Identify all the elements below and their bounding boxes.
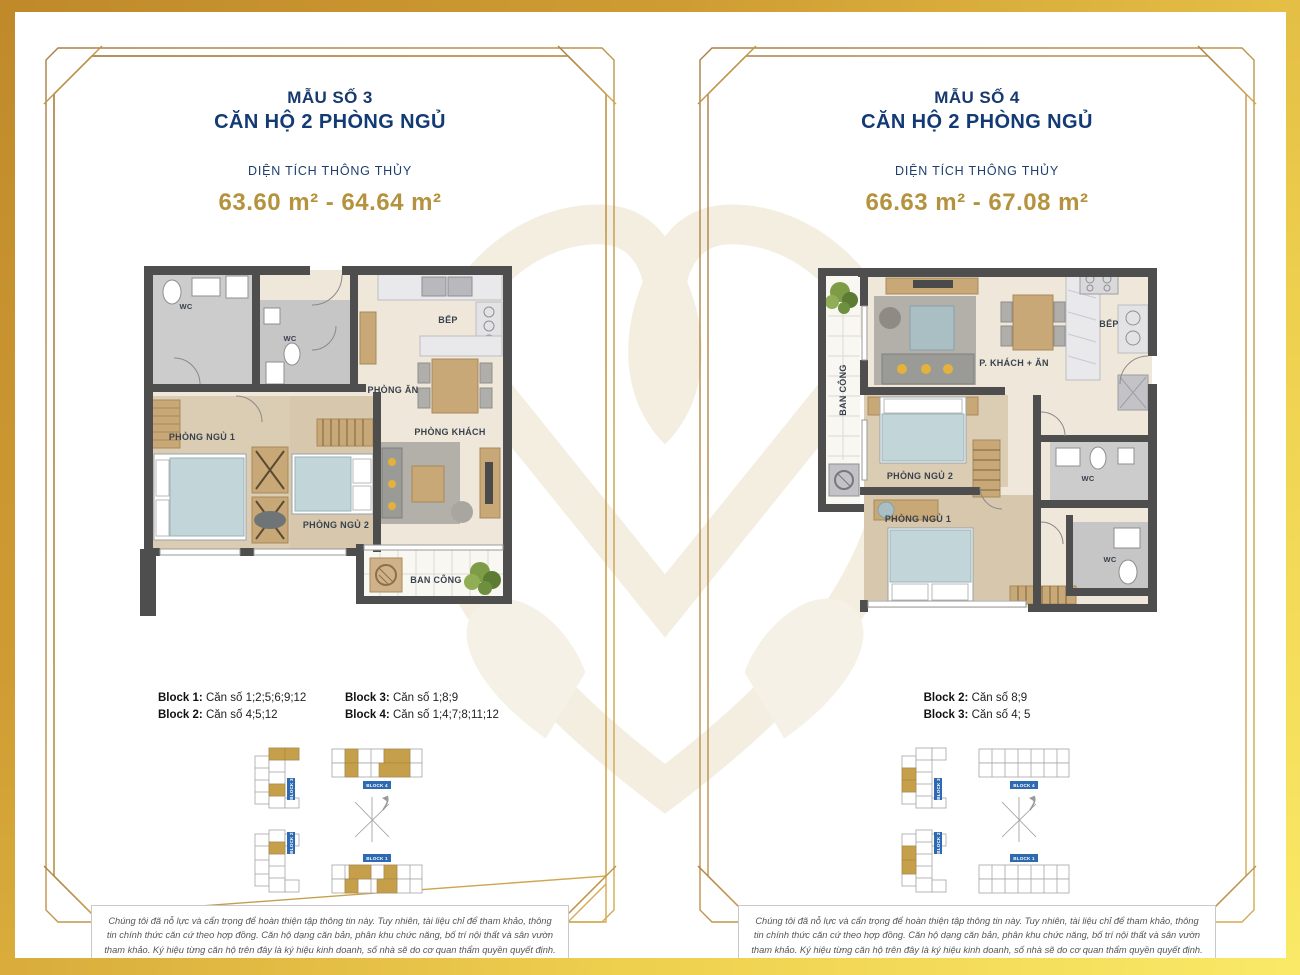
- armchair: [910, 306, 954, 350]
- block4-units: Căn số 1;4;7;8;11;12: [393, 709, 499, 721]
- block3-units: Căn số 4; 5: [972, 709, 1031, 721]
- bedroom1-label: PHÒNG NGỦ 1: [169, 431, 235, 442]
- area-value: 63.60 m² - 64.64 m²: [38, 189, 622, 217]
- bedroom1-label: PHÒNG NGỦ 1: [885, 513, 951, 524]
- kitchen-label: BẾP: [438, 315, 457, 325]
- side-table: [879, 307, 901, 329]
- wc1-label: WC: [1082, 474, 1095, 483]
- shoe-cabinet: [360, 312, 376, 364]
- template-number: MẪU SỐ 3: [38, 88, 622, 108]
- keyplan-label-hbottom: BLOCK 1: [366, 856, 388, 861]
- block4-name: Block 4:: [345, 709, 390, 721]
- block1-name: Block 1:: [158, 692, 203, 704]
- disclaimer-note: Chúng tôi đã nỗ lực và cẩn trọng để hoàn…: [91, 905, 569, 966]
- keyplan-label-vbottom: BLOCK 2: [936, 832, 941, 854]
- keyplan-label-vtop: BLOCK 3: [289, 778, 294, 800]
- coffee-table: [412, 466, 444, 502]
- block3-name: Block 3:: [924, 709, 969, 721]
- balcony-label: BAN CÔNG: [837, 364, 848, 415]
- living-label: PHÒNG KHÁCH: [414, 426, 485, 437]
- living-set: [380, 442, 500, 524]
- brochure-page: MẪU SỐ 3 CĂN HỘ 2 PHÒNG NGỦ DIỆN TÍCH TH…: [0, 0, 1300, 975]
- ottoman: [451, 501, 473, 523]
- block-units-col1: Block 1: Căn số 1;2;5;6;9;12 Block 2: Că…: [158, 690, 306, 724]
- keyplan-label-vbottom: BLOCK 2: [289, 832, 294, 854]
- keyplan-mau-3: BLOCK 3 BLOCK 4 BLOCK 2 BLOCK 1: [237, 742, 423, 900]
- compass-icon: [1002, 796, 1036, 842]
- block3-units: Căn số 1;8;9: [393, 692, 458, 704]
- block-units: Block 2: Căn số 8;9 Block 3: Căn số 4; 5: [692, 690, 1262, 724]
- block3-name: Block 3:: [345, 692, 390, 704]
- wc1-label: WC: [180, 302, 193, 311]
- wc2-label: WC: [1104, 555, 1117, 564]
- keyplan-block-labels: BLOCK 3 BLOCK 4 BLOCK 2 BLOCK 1: [934, 778, 1038, 862]
- floorplan-mau-3: WC WC BẾP PHÒNG ĂN PHÒNG KHÁCH PHÒNG NGỦ…: [140, 262, 520, 622]
- block2-name: Block 2:: [924, 692, 969, 704]
- area-caption: DIỆN TÍCH THÔNG THỦY: [38, 164, 622, 178]
- dining-label: PHÒNG ĂN: [368, 384, 419, 395]
- keyplan-block-labels: BLOCK 3 BLOCK 4 BLOCK 2 BLOCK 1: [287, 778, 391, 862]
- panel-mau-4: MẪU SỐ 4 CĂN HỘ 2 PHÒNG NGỦ DIỆN TÍCH TH…: [692, 40, 1262, 930]
- area-value: 66.63 m² - 67.08 m²: [692, 189, 1262, 217]
- disclaimer-note: Chúng tôi đã nỗ lực và cẩn trọng để hoàn…: [738, 905, 1216, 966]
- keyplan-mau-4: BLOCK 3 BLOCK 4 BLOCK 2 BLOCK 1: [884, 742, 1070, 900]
- washing-machine: [370, 558, 402, 592]
- apartment-type-title: CĂN HỘ 2 PHÒNG NGỦ: [692, 111, 1262, 134]
- compass-icon: [355, 796, 389, 842]
- kitchen-label: BẾP: [1099, 319, 1118, 329]
- block1-units: Căn số 1;2;5;6;9;12: [206, 692, 306, 704]
- block2-units: Căn số 4;5;12: [206, 709, 278, 721]
- balcony-label: BAN CÔNG: [410, 574, 461, 585]
- bedroom2-label: PHÒNG NGỦ 2: [303, 519, 369, 530]
- apartment-type-title: CĂN HỘ 2 PHÒNG NGỦ: [38, 111, 622, 134]
- keyplan-label-hbottom: BLOCK 1: [1013, 856, 1035, 861]
- bedroom2-label: PHÒNG NGỦ 2: [887, 470, 953, 481]
- block2-units: Căn số 8;9: [972, 692, 1028, 704]
- keyplan-label-htop: BLOCK 4: [366, 783, 388, 788]
- keyplan-label-vtop: BLOCK 3: [936, 778, 941, 800]
- living-dining-label: P. KHÁCH + ĂN: [979, 358, 1049, 368]
- area-caption: DIỆN TÍCH THÔNG THỦY: [692, 164, 1262, 178]
- floorplan-mau-4: BAN CÔNG P. KHÁCH + ĂN BẾP PHÒNG NGỦ 2 P…: [818, 260, 1163, 625]
- block2-name: Block 2:: [158, 709, 203, 721]
- kitchen-island: [420, 336, 502, 356]
- keyplan-label-htop: BLOCK 4: [1013, 783, 1035, 788]
- dining-table: [1013, 295, 1053, 350]
- washing-machine: [829, 464, 859, 496]
- sink-counter: [1118, 305, 1148, 353]
- template-number: MẪU SỐ 4: [692, 88, 1262, 108]
- panel-mau-3: MẪU SỐ 3 CĂN HỘ 2 PHÒNG NGỦ DIỆN TÍCH TH…: [38, 40, 622, 930]
- wc2-label: WC: [284, 334, 297, 343]
- block-units-col2: Block 3: Căn số 1;8;9 Block 4: Căn số 1;…: [345, 690, 499, 724]
- highlighted-units: [902, 768, 916, 874]
